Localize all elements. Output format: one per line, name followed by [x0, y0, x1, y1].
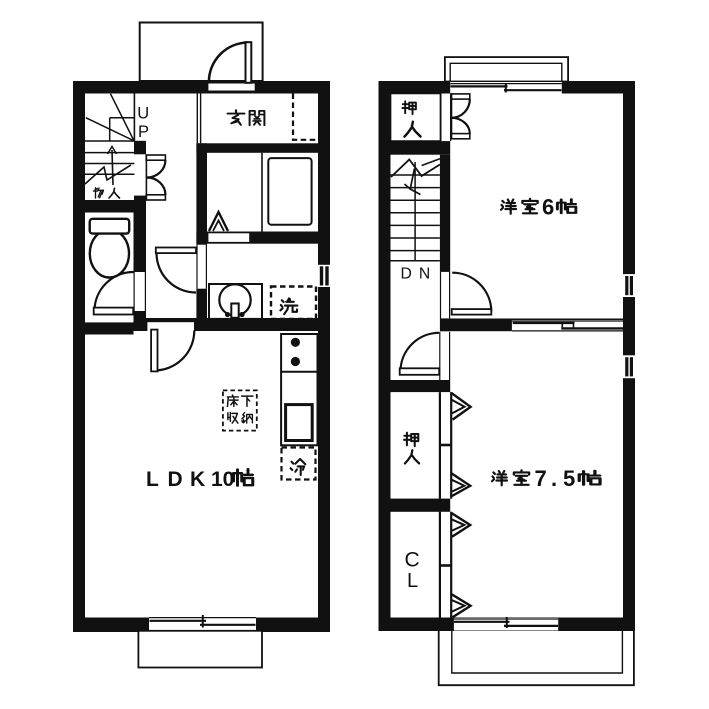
- svg-text:C: C: [405, 549, 420, 572]
- svg-text:L: L: [146, 468, 159, 491]
- svg-text:L: L: [407, 570, 418, 592]
- svg-text:P: P: [138, 123, 149, 141]
- svg-text:6: 6: [542, 195, 554, 220]
- svg-text:7: 7: [535, 466, 547, 491]
- svg-text:U: U: [137, 104, 149, 122]
- svg-text:.: .: [551, 466, 557, 491]
- svg-text:K: K: [190, 468, 205, 491]
- svg-text:D: D: [168, 468, 183, 491]
- svg-text:5: 5: [563, 466, 575, 491]
- svg-text:10: 10: [211, 468, 234, 491]
- svg-text:DN: DN: [401, 265, 438, 282]
